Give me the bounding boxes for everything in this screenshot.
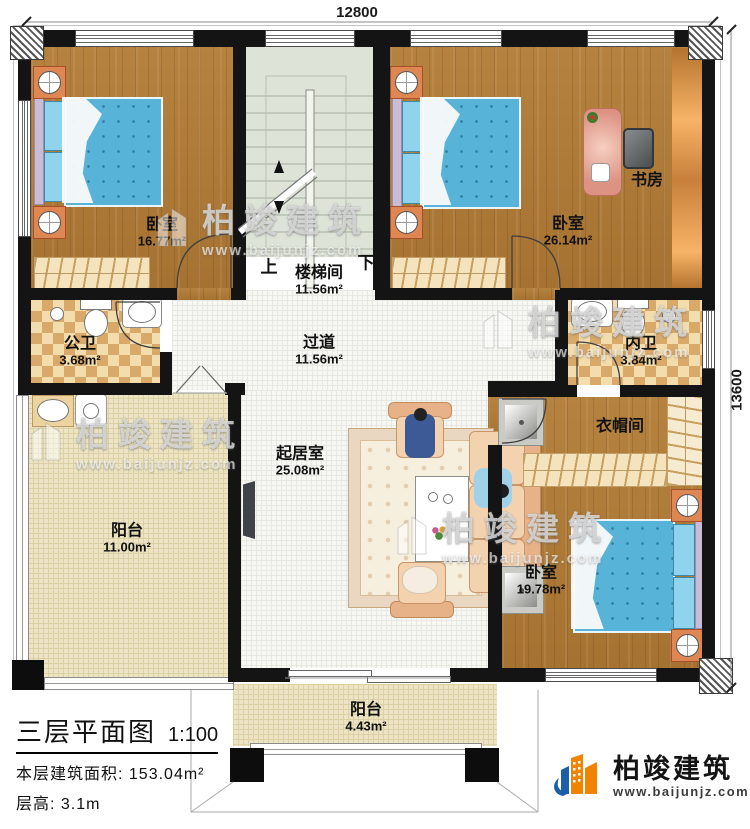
corner-hatch-marker — [699, 658, 733, 694]
table-lamp-icon — [38, 211, 61, 234]
bed-pillow — [44, 101, 65, 151]
room-label-balcony-left: 阳台 11.00m² — [103, 522, 151, 555]
exterior-outline-right — [720, 25, 721, 685]
clothes-rack — [667, 396, 704, 486]
window — [545, 668, 657, 682]
room-label-cloakroom: 衣帽间 — [596, 418, 644, 436]
room-area: 26.14m² — [544, 234, 592, 249]
office-chair — [623, 128, 654, 169]
table-lamp-icon — [395, 211, 418, 234]
room-label-bedroom-br: 卧室 19.78m² — [517, 564, 565, 597]
room-area: 3.84m² — [620, 354, 661, 369]
company-logo: 柏竣建筑 www.baijunjz.com — [549, 748, 749, 806]
wall-segment — [373, 30, 390, 290]
wall-segment — [160, 290, 172, 300]
room-label-inner-bath: 内卫 3.84m² — [620, 335, 661, 368]
room-area: 25.08m² — [276, 464, 324, 479]
nightstand — [390, 206, 423, 239]
room-name: 阳台 — [103, 522, 151, 540]
wall-segment — [375, 288, 512, 300]
sliding-door-panel — [367, 676, 451, 683]
room-name: 内卫 — [620, 335, 661, 353]
room-label-living: 起居室 25.08m² — [276, 445, 324, 478]
room-label-study: 书房 — [631, 172, 663, 190]
bed-pillow — [673, 524, 695, 576]
wall-segment — [560, 288, 702, 300]
room-area: 11.00m² — [103, 541, 151, 556]
wall-segment — [225, 383, 245, 395]
room-name: 衣帽间 — [596, 418, 644, 436]
room-name: 卧室 — [544, 215, 592, 233]
balcony-railing — [16, 395, 29, 690]
balcony-railing — [250, 743, 482, 755]
table-lamp-icon — [676, 634, 699, 657]
bedroom-tl-door-threshold — [177, 288, 231, 300]
plan-scale: 1:100 — [168, 724, 218, 747]
desk-cup — [591, 163, 610, 182]
bed-headboard — [392, 97, 402, 207]
window — [18, 100, 31, 237]
wall-segment — [488, 381, 568, 397]
wall-segment — [18, 383, 172, 395]
balcony-railing — [44, 677, 234, 690]
room-label-balcony-bottom: 阳台 4.43m² — [345, 701, 386, 734]
room-area: 19.78m² — [517, 583, 565, 598]
clothes-rack — [523, 453, 667, 487]
corner-hatch-marker — [688, 26, 723, 60]
sink-basin — [577, 301, 607, 322]
table-flowers-icon — [430, 524, 448, 540]
room-area: 3.68m² — [59, 354, 100, 369]
side-table — [498, 398, 544, 446]
wardrobe — [672, 48, 702, 288]
nightstand — [33, 66, 66, 99]
floor-height-value: 3.1m — [61, 796, 101, 813]
room-name: 起居室 — [276, 445, 324, 463]
bed-headboard — [34, 97, 44, 205]
stair-down-label: 下 — [358, 249, 375, 274]
floor-area-label: 本层建筑面积: — [16, 766, 123, 783]
wall-segment — [228, 668, 290, 682]
floor-height-label: 层高: — [16, 796, 55, 813]
table-lamp-icon — [676, 494, 699, 517]
throw-pillow — [402, 566, 438, 594]
bed-pillow — [44, 152, 65, 202]
wall-segment — [488, 668, 545, 682]
bed-pillow — [402, 101, 423, 152]
column-post — [465, 748, 499, 782]
dimension-top: 12800 — [336, 4, 378, 21]
wall-segment — [231, 288, 246, 300]
title-block: 三层平面图 1:100 本层建筑面积: 153.04m² 层高: 3.1m — [16, 712, 218, 814]
room-name: 公卫 — [59, 335, 100, 353]
room-label-public-bath: 公卫 3.68m² — [59, 335, 100, 368]
room-name: 书房 — [631, 172, 663, 190]
window — [75, 30, 194, 47]
floor-area-row: 本层建筑面积: 153.04m² — [16, 760, 218, 784]
floor-plan-canvas: 12800 13600 卧室 16.77m² 楼梯间 11.56m² 上 下 卧… — [0, 0, 750, 829]
corner-hatch-marker — [10, 26, 44, 60]
floor-drain-icon — [662, 309, 676, 323]
company-url: www.baijunjz.com — [613, 784, 749, 799]
column-post — [12, 660, 44, 690]
floor-drain-icon — [50, 307, 64, 321]
exterior-outline-top — [13, 25, 721, 26]
company-logo-icon — [549, 748, 605, 806]
wall-segment — [488, 445, 502, 682]
table-lamp-icon — [395, 71, 418, 94]
laundry-sink — [37, 399, 69, 422]
room-label-bedroom-tl: 卧室 16.77m² — [138, 216, 186, 249]
table-lamp-icon — [38, 71, 61, 94]
room-area: 11.56m² — [295, 353, 343, 368]
lamp-dot — [519, 420, 524, 425]
nightstand — [33, 206, 66, 239]
toilet-bowl — [84, 309, 108, 337]
sliding-door-panel — [288, 670, 372, 677]
room-label-stairwell: 楼梯间 11.56m² — [295, 264, 343, 297]
washer-drum-icon — [83, 403, 99, 419]
room-label-bedroom-tr: 卧室 26.14m² — [544, 215, 592, 248]
plan-title: 三层平面图 — [16, 712, 156, 749]
room-name: 过道 — [295, 334, 343, 352]
nightstand — [671, 489, 704, 522]
wall-segment — [620, 385, 715, 397]
table-dish-icon — [428, 492, 438, 502]
nightstand — [390, 66, 423, 99]
floor-height-row: 层高: 3.1m — [16, 790, 218, 814]
room-area: 11.56m² — [295, 283, 343, 298]
wall-segment — [233, 30, 246, 290]
window — [410, 30, 502, 47]
bed-pillow — [673, 577, 695, 629]
room-name: 卧室 — [138, 216, 186, 234]
dimension-right: 13600 — [729, 369, 746, 411]
wall-segment — [18, 288, 177, 300]
room-area: 16.77m² — [138, 235, 186, 250]
bed-pillow — [402, 153, 423, 204]
person-head — [414, 408, 427, 421]
company-brand: 柏竣建筑 — [613, 755, 749, 783]
window — [587, 30, 675, 47]
corridor-floor — [172, 290, 555, 390]
wall-segment — [228, 395, 241, 680]
sink-basin — [128, 301, 156, 323]
plant-icon — [587, 112, 598, 123]
window — [702, 310, 715, 369]
table-dish-icon — [443, 494, 453, 504]
exterior-outline-left — [13, 25, 14, 685]
floor-area-value: 153.04m² — [129, 766, 205, 783]
stairwell-floor — [246, 47, 373, 257]
coffee-table — [415, 476, 469, 562]
room-area: 4.43m² — [345, 720, 386, 735]
column-post — [230, 748, 264, 782]
tv — [243, 481, 255, 539]
room-label-corridor: 过道 11.56m² — [295, 334, 343, 367]
room-name: 卧室 — [517, 564, 565, 582]
window — [265, 30, 355, 47]
bedroom-tr-door-threshold — [512, 288, 560, 300]
slatted-bench — [34, 257, 150, 289]
company-logo-text: 柏竣建筑 www.baijunjz.com — [613, 755, 749, 798]
stair-up-label: 上 — [261, 253, 278, 278]
slatted-bench — [392, 257, 506, 289]
room-name: 阳台 — [345, 701, 386, 719]
toilet-bowl — [621, 308, 645, 337]
plan-title-line: 三层平面图 1:100 — [16, 712, 218, 754]
room-name: 楼梯间 — [295, 264, 343, 282]
